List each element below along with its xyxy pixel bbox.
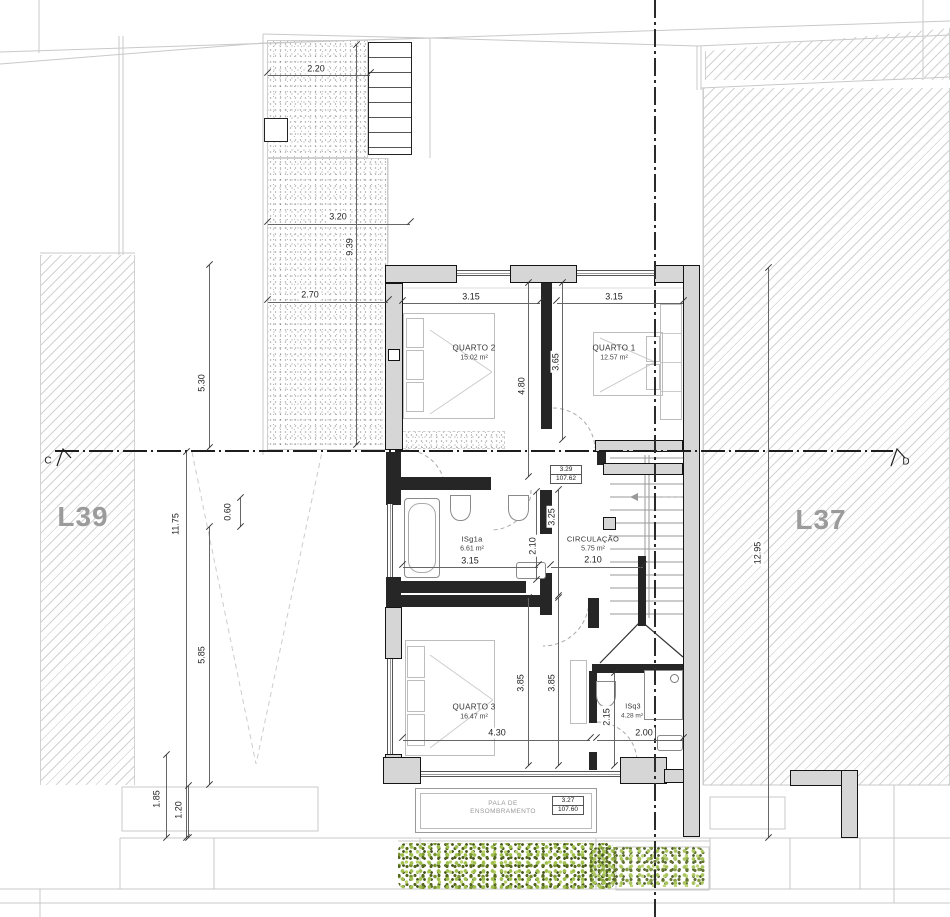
dim-line [558, 490, 559, 596]
dim-quarto3-width: 4.30 [486, 728, 508, 739]
toilet [450, 495, 471, 521]
stair-direction-arrow [630, 493, 638, 501]
room-label-circulacao: CIRCULAÇÃO [567, 535, 619, 544]
window [457, 270, 510, 276]
dim-line [188, 786, 189, 838]
dim-line [268, 75, 370, 76]
wall [385, 283, 403, 450]
window [577, 270, 654, 276]
canopy-label-line1: PALA DE [470, 800, 536, 808]
wall [510, 265, 577, 283]
dim-patio-mid: 3.20 [327, 212, 349, 223]
wall [589, 752, 597, 770]
wall-niche [388, 349, 400, 361]
level-upper-value: 3.29 [551, 466, 581, 475]
dim-line [614, 673, 615, 766]
projection-lines [192, 452, 322, 764]
room-area-quarto3: 16.47 m² [460, 714, 488, 721]
dim-right-total: 12.95 [753, 540, 764, 567]
stair-treads [610, 455, 683, 618]
wall [385, 265, 457, 283]
sink [516, 562, 546, 579]
dim-quarto1-width: 3.15 [603, 292, 625, 303]
room-label-isg1a: ISg1a [461, 535, 482, 544]
wall [386, 452, 401, 478]
window [387, 504, 393, 578]
dim-line [209, 527, 210, 785]
patio-box [264, 118, 288, 142]
dim-isq3-width: 2.00 [633, 728, 655, 739]
room-label-quarto2: QUARTO 2 [452, 344, 495, 353]
wall [386, 595, 544, 607]
room-area-quarto1: 12.57 m² [600, 355, 628, 362]
bidet [508, 495, 529, 521]
level-marker-lower: 3.27 107.60 [552, 796, 584, 815]
dim-quarto1-depth: 3.65 [551, 351, 562, 373]
dim-corridor: 3.25 [547, 506, 558, 528]
stair-break-line [600, 621, 683, 663]
hedge-planting [590, 847, 705, 887]
wall [620, 757, 667, 784]
dim-isg1a-depth: 2.10 [528, 535, 539, 557]
pillow [646, 336, 660, 362]
dim-line [186, 452, 187, 838]
section-marker-c: C [44, 456, 51, 467]
section-marker-d: D [902, 457, 909, 468]
lot-label-l37: L37 [795, 504, 846, 536]
dim-quarto2-width: 3.15 [460, 292, 482, 303]
dim-line [557, 303, 683, 304]
wall [385, 607, 402, 659]
level-marker-upper: 3.29 107.62 [550, 465, 582, 484]
room-label-quarto3: QUARTO 3 [452, 703, 495, 712]
dim-line [551, 567, 643, 568]
dim-left-upper: 5.30 [197, 372, 208, 394]
sink [657, 735, 683, 751]
dim-patio-len: 9.39 [345, 236, 356, 258]
dim-line [562, 283, 563, 440]
wall [540, 573, 552, 615]
dim-patio-top: 2.20 [305, 64, 327, 75]
dim-isg1a-width: 3.15 [459, 556, 481, 567]
floor-plan-canvas: 2.20 3.20 9.39 2.70 5.30 11.75 0.60 5.85… [0, 0, 950, 917]
shower-head [670, 674, 679, 683]
room-area-isq3: 4.28 m² [621, 713, 643, 720]
dim-line [356, 45, 357, 445]
dim-line [240, 498, 241, 527]
wall [386, 477, 491, 490]
wall [603, 463, 683, 475]
room-area-isg1a: 6.61 m² [460, 546, 484, 553]
wall [683, 265, 700, 837]
stair-post [603, 517, 616, 530]
pillow [646, 364, 660, 390]
pillow [407, 646, 425, 678]
pillow [406, 382, 424, 412]
dim-line [166, 755, 167, 838]
lot-label-l39: L39 [57, 501, 108, 533]
canopy-label-line2: ENSOMBRAMENTO [470, 808, 536, 816]
dim-line [268, 224, 410, 225]
wall [386, 581, 526, 593]
dim-line [597, 740, 683, 741]
dim-quarto2-depth: 4.80 [517, 375, 528, 397]
level-lower-elevation: 107.60 [553, 806, 583, 814]
bathtub-inner [408, 503, 436, 573]
wall [383, 757, 421, 784]
pillow [406, 318, 424, 348]
level-lower-value: 3.27 [553, 797, 583, 806]
dim-isq3-depth: 2.15 [602, 706, 613, 728]
room-label-isq3: ISq3 [625, 704, 641, 711]
dim-left-b2: 1.20 [174, 799, 185, 821]
room-area-circulacao: 5.75 m² [581, 546, 605, 553]
window [387, 659, 393, 754]
hedge-planting [398, 843, 615, 889]
dim-left-b1: 1.85 [152, 788, 163, 810]
wall [588, 598, 599, 628]
dim-line [268, 302, 388, 303]
vertical-centerline [654, 0, 656, 917]
desk-quarto3 [570, 660, 587, 724]
room-area-quarto2: 15.02 m² [460, 355, 488, 362]
dim-line [209, 265, 210, 448]
neighbour-wall [841, 770, 858, 838]
dim-circulacao-width: 2.10 [582, 555, 604, 566]
pillow [406, 350, 424, 380]
dim-left-total: 11.75 [171, 511, 182, 537]
wall [386, 490, 401, 505]
room-label-quarto1: QUARTO 1 [592, 344, 635, 353]
dim-patio-low: 2.70 [299, 290, 321, 301]
level-upper-elevation: 107.62 [551, 475, 581, 483]
patio-ladder [368, 42, 412, 155]
dim-left-lower: 5.85 [197, 644, 208, 666]
dim-left-small: 0.60 [223, 501, 234, 523]
dim-line [528, 283, 529, 477]
dim-quarto3-depth-b: 3.85 [547, 672, 558, 694]
dim-line [403, 740, 590, 741]
dim-line [403, 303, 540, 304]
dim-line [403, 567, 538, 568]
toilet [596, 681, 616, 707]
pillow [407, 680, 425, 712]
dim-line [768, 268, 769, 838]
canopy-label: PALA DE ENSOMBRAMENTO [470, 800, 536, 816]
wardrobe-quarto1 [660, 304, 682, 420]
window [421, 771, 620, 777]
pillow [407, 714, 425, 746]
dim-quarto3-depth-a: 3.85 [516, 672, 527, 694]
